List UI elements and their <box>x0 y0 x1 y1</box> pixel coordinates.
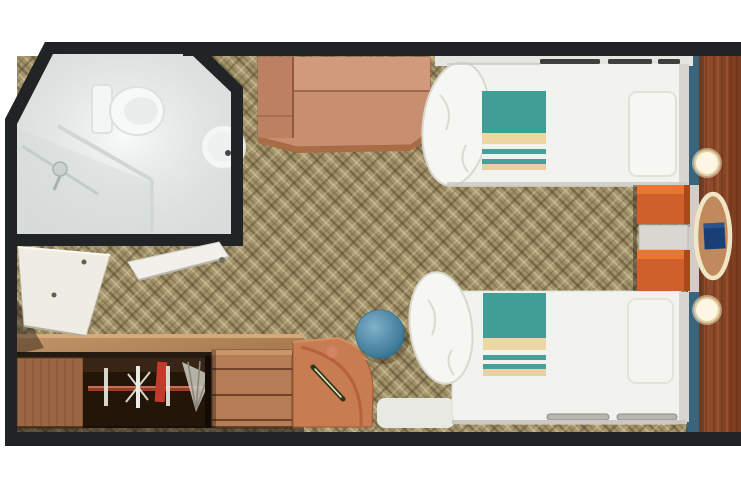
bed-shadow-lower <box>452 420 687 424</box>
nightstand-upper-top <box>637 185 690 194</box>
hanger-bar-1 <box>104 368 108 406</box>
pillow-lower <box>628 299 673 383</box>
blanket-lower <box>483 293 546 338</box>
entry-door-handle <box>52 293 57 298</box>
wall-left <box>5 244 17 446</box>
shower-head <box>53 162 67 176</box>
nightstand-lower-edge <box>684 250 690 291</box>
blanket-stripe-teal1-upper <box>482 149 546 154</box>
bedframe-end-upper <box>679 64 689 185</box>
bedframe-end-lower <box>679 292 689 422</box>
bathroom-door-handle <box>219 257 225 263</box>
blanket-stripe-white1-upper <box>482 144 546 149</box>
drawer-chest <box>212 350 292 428</box>
toilet-tank <box>92 85 112 133</box>
blanket-stripe-teal2-lower <box>483 364 546 369</box>
stool-shading <box>356 310 404 358</box>
wardrobe-top-highlight <box>17 334 304 338</box>
desk-pink-smudge <box>326 346 338 358</box>
blanket-stripe-cream-upper <box>482 133 546 144</box>
cabin-floorplan <box>0 0 741 494</box>
blanket-stripe-white1-lower <box>483 350 546 355</box>
blanket-stripe-white2-lower <box>483 360 546 364</box>
wall-bottom <box>5 432 741 446</box>
pillow-upper <box>629 92 676 176</box>
blanket-stripe-peach-upper <box>482 164 546 170</box>
entry-door-peephole <box>82 260 87 265</box>
wardrobe-base-shadow <box>17 426 304 432</box>
vent-3 <box>658 59 680 64</box>
nightstand-side-shadow <box>633 185 637 291</box>
blanket-stripe-cream-lower <box>483 338 546 350</box>
bed-upper <box>416 56 693 190</box>
ceiling-light-lower <box>695 298 719 322</box>
sink-drain <box>225 150 231 156</box>
floorplan-svg <box>0 0 741 494</box>
drawer-left-shadow <box>212 350 216 428</box>
drawer-top-highlight <box>212 350 292 355</box>
ceiling-light-upper <box>695 151 719 175</box>
nightstand-shelf <box>639 225 688 250</box>
sofa-cabinet <box>258 57 430 153</box>
sofa-back-cushion <box>293 57 430 91</box>
nightstand-upper-edge <box>684 185 690 224</box>
blanket-stripe-peach-lower <box>483 369 546 376</box>
blanket-stripe-teal1-lower <box>483 355 546 360</box>
toilet-seat <box>124 97 158 125</box>
blanket-stripe-teal2-upper <box>482 159 546 164</box>
nightstand-lower-top <box>637 250 690 259</box>
linen-spill-lower <box>377 398 455 428</box>
blanket-stripe-white2-upper <box>482 154 546 159</box>
wardrobe <box>17 334 304 432</box>
bed-lower <box>377 269 689 428</box>
vent-1 <box>540 59 600 64</box>
blanket-upper <box>482 91 546 133</box>
nightstand-unit <box>633 185 690 291</box>
bathroom <box>17 54 245 234</box>
vent-2 <box>608 59 652 64</box>
hanger-bar-3 <box>166 366 170 406</box>
hanger-bar-2 <box>136 366 140 408</box>
bed-rail-left <box>547 414 609 420</box>
sofa-armrest <box>258 57 293 138</box>
wall-top <box>183 42 741 56</box>
bed-rail-right <box>617 414 677 420</box>
wardrobe-divider <box>205 356 212 428</box>
